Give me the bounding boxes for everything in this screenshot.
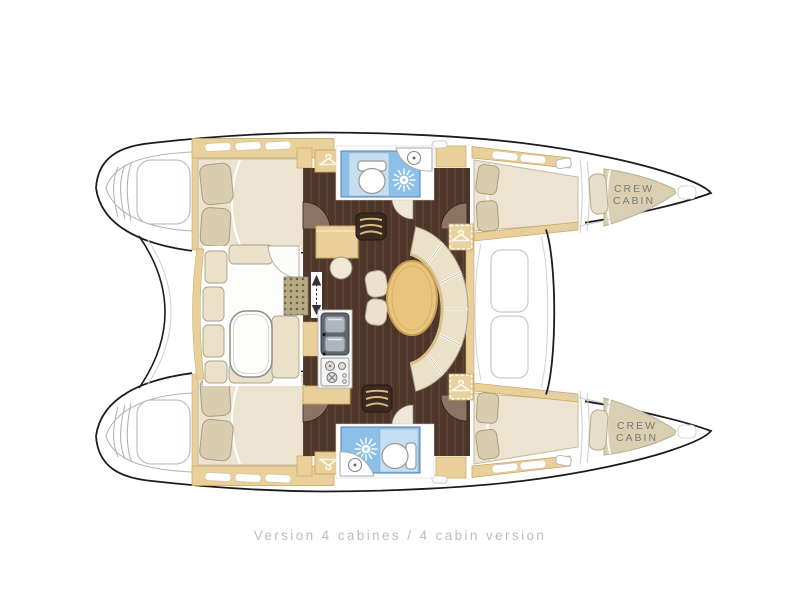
- crew-cabin-label-port-line1: CREW: [614, 183, 654, 195]
- galley-wall-cabinet: [303, 322, 319, 356]
- cockpit-grating: [284, 277, 308, 315]
- starboard-bathroom: [336, 424, 434, 478]
- starboard-steps: [362, 385, 392, 412]
- crew-cabin-label-starboard-line1: CREW: [617, 420, 657, 432]
- port-bathroom: [336, 146, 434, 200]
- sink-icon: [325, 337, 345, 352]
- aft-deck-line: [148, 240, 171, 384]
- toilet-icon: [358, 161, 386, 194]
- nav-stool: [330, 257, 352, 279]
- cockpit: [193, 245, 302, 386]
- port-forward-locker: [449, 224, 473, 250]
- galley: [318, 310, 352, 388]
- deck-line: [475, 244, 481, 380]
- version-caption: Version 4 cabines / 4 cabin version: [254, 528, 547, 543]
- bridgedeck-front-edge: [546, 230, 554, 395]
- deck-line: [541, 236, 548, 388]
- coachroof-windows: [491, 250, 528, 378]
- floorplan-canvas: CREW CABIN CREW CABIN Version 4 cabines …: [0, 0, 800, 600]
- saloon-stool: [364, 298, 388, 327]
- cockpit-table: [230, 311, 272, 377]
- galley-aft-cabinet: [303, 386, 350, 404]
- stove-icon: [321, 358, 349, 386]
- port-steps: [356, 213, 386, 240]
- crew-cabin-label-starboard-line2: CABIN: [616, 432, 658, 444]
- aft-crossbeam-edge: [139, 236, 165, 388]
- saloon-table: [387, 261, 437, 335]
- cockpit-rail: [193, 249, 205, 379]
- catamaran-floorplan-page: CREW CABIN CREW CABIN Version 4 cabines …: [0, 0, 800, 600]
- toilet-icon: [382, 443, 416, 469]
- crew-cabin-label-port-line2: CABIN: [613, 195, 655, 207]
- starboard-forward-locker: [449, 374, 473, 400]
